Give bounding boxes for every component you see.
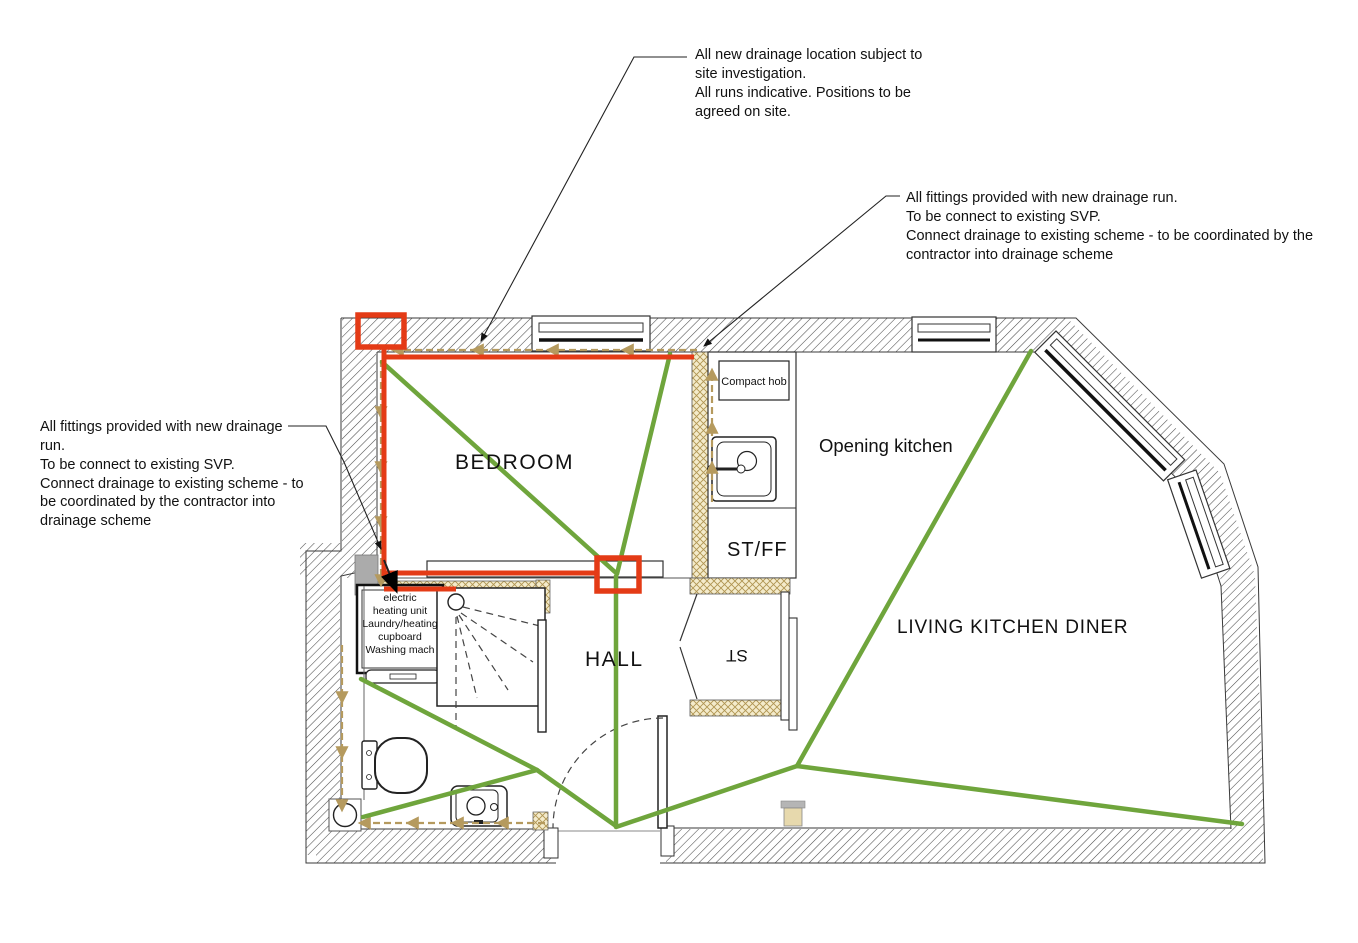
heating-cupboard-text: electric heating unit Laundry/heating cu…: [360, 592, 440, 657]
svp-pipe: [329, 799, 361, 831]
leader-top-annotation: [481, 57, 687, 341]
cupboard-line: cupboard: [360, 631, 440, 644]
label-st-ff: ST/FF: [727, 539, 788, 561]
label-opening-kitchen: Opening kitchen: [819, 435, 953, 456]
bathroom-door-leaf: [538, 620, 546, 732]
annotation-left: All fittings provided with new drainage …: [40, 418, 340, 531]
label-st: ST: [726, 646, 748, 665]
shower-enclosure: [437, 588, 545, 728]
label-hall: HALL: [585, 648, 644, 671]
label-living-kitchen-diner: LIVING KITCHEN DINER: [897, 617, 1128, 638]
label-compact-hob: Compact hob: [721, 376, 786, 388]
toilet: [362, 738, 427, 793]
shower-head: [448, 594, 464, 610]
bottom-wall-service-block: [781, 801, 805, 826]
window-bay-upper: [1035, 331, 1185, 481]
floor-plan-drawing: BEDROOM HALL ST/FF Opening kitchen LIVIN…: [0, 0, 1358, 943]
window-top-right: [912, 317, 996, 352]
annotation-top: All new drainage location subject to sit…: [695, 46, 965, 121]
entrance-door: [533, 716, 674, 858]
cupboard-line: Washing mach: [360, 644, 440, 657]
door-swing-arc: [553, 718, 663, 828]
window-top-left: [532, 316, 650, 351]
kitchen-sink: [708, 437, 777, 501]
kitchen-partition-wall: [692, 352, 708, 578]
cupboard-line: electric: [360, 592, 440, 605]
cupboard-line: heating unit: [360, 605, 440, 618]
cupboard-line: Laundry/heating: [360, 618, 440, 631]
label-bedroom: BEDROOM: [455, 451, 574, 474]
annotation-right: All fittings provided with new drainage …: [906, 189, 1358, 264]
